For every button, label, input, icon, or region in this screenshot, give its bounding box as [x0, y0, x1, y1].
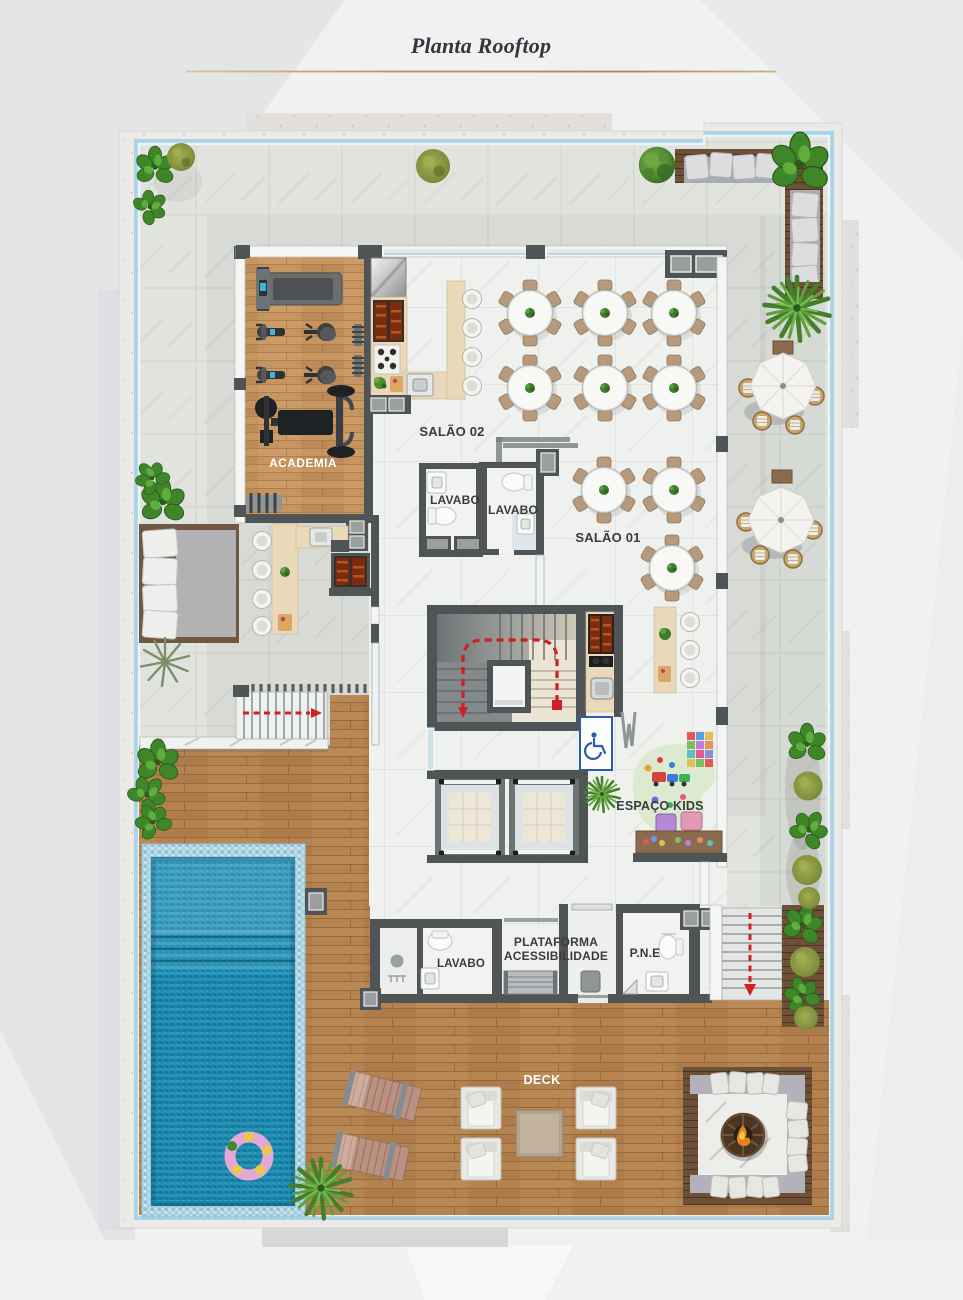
- svg-text:SALÃO 01: SALÃO 01: [575, 530, 640, 545]
- svg-text:DECK: DECK: [523, 1073, 560, 1087]
- svg-text:Planta Rooftop: Planta Rooftop: [410, 33, 551, 58]
- svg-text:LAVABO: LAVABO: [430, 493, 480, 507]
- svg-text:ACESSIBILIDADE: ACESSIBILIDADE: [504, 949, 608, 963]
- svg-text:PLATAFORMA: PLATAFORMA: [514, 935, 598, 949]
- svg-text:LAVABO: LAVABO: [437, 958, 485, 970]
- svg-text:SALÃO 02: SALÃO 02: [419, 424, 484, 439]
- svg-text:ACADEMIA: ACADEMIA: [269, 456, 337, 470]
- svg-text:ESPAÇO KIDS: ESPAÇO KIDS: [616, 799, 703, 813]
- svg-text:LAVABO: LAVABO: [488, 503, 538, 517]
- svg-text:P.N.E: P.N.E: [630, 946, 661, 960]
